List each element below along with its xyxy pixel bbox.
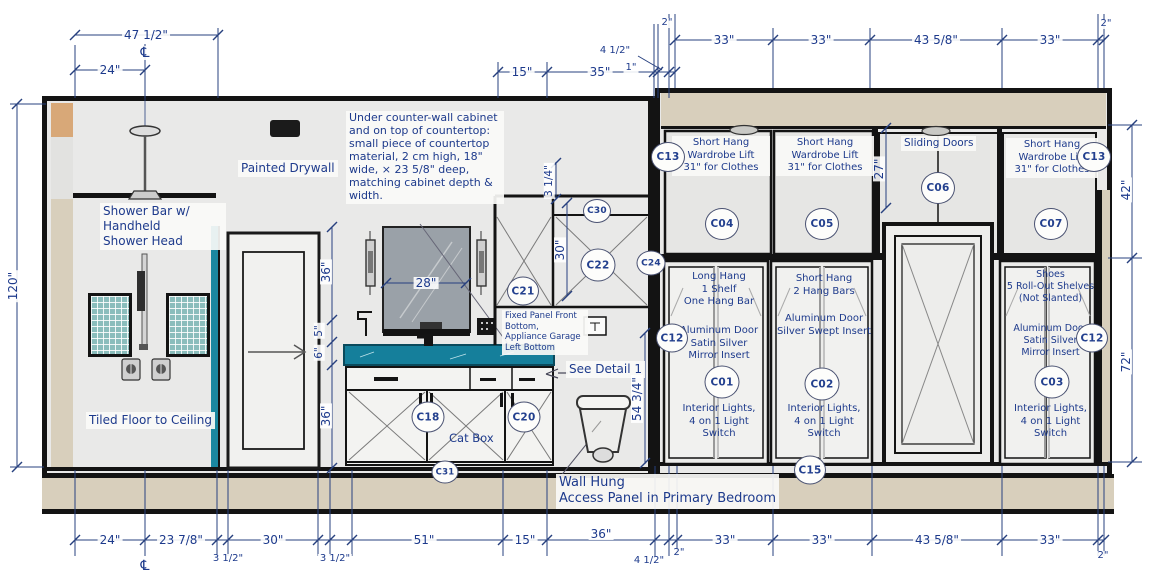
dim-top-35: 35"	[588, 66, 613, 78]
label-c02-short-hang2: Short Hang 2 Hang Bars	[773, 272, 875, 299]
callout-c22: C22	[581, 249, 616, 282]
handheld-shower-bar-icon	[137, 254, 148, 350]
dim-54: 54 3/4"	[631, 375, 643, 423]
dim-closet-27: 27"	[873, 157, 885, 182]
dim-mirror-28: 28"	[414, 277, 439, 289]
dim-36-lower: 36"	[320, 404, 332, 429]
dim-bot-24: 24"	[98, 534, 123, 546]
callout-c12-right: C12	[1076, 324, 1108, 353]
label-c02-alum-door: Aluminum Door Silver Swept Insert	[773, 312, 875, 339]
callout-c01: C01	[705, 366, 740, 399]
centerline-top: ℄	[139, 46, 152, 60]
dim-bot-15: 15"	[513, 534, 538, 546]
centerline-bottom: ℄	[139, 559, 152, 573]
faucet-icon	[358, 312, 372, 336]
dim-top-24: 24"	[98, 64, 123, 76]
dim-right-72: 72"	[1120, 350, 1132, 375]
callout-c05: C05	[805, 208, 839, 240]
label-c04-short-hang: Short Hang Wardrobe Lift 31" for Clothes	[672, 136, 770, 176]
dim-top-1: 1"	[624, 63, 639, 73]
callout-c03: C03	[1035, 366, 1070, 399]
dim-bot-3half-2: 3 1/2"	[318, 554, 352, 564]
dim-top-15: 15"	[510, 66, 535, 78]
keypad-icon	[477, 318, 495, 335]
dim-top-33-2: 33"	[809, 34, 834, 46]
callout-c20: C20	[508, 402, 541, 433]
dim-36-upper: 36"	[320, 260, 332, 285]
label-painted-drywall: Painted Drywall	[238, 160, 338, 177]
label-c02-lights: Interior Lights, 4 on 1 Light Switch	[773, 402, 875, 442]
callout-c13-left: C13	[651, 142, 685, 172]
callout-c07: C07	[1034, 208, 1068, 240]
callout-c04: C04	[705, 208, 739, 240]
callout-c12-left: C12	[656, 324, 688, 353]
label-c01-lights: Interior Lights, 4 on 1 Light Switch	[667, 402, 771, 442]
label-counter-note: Under counter-wall cabinet and on top of…	[346, 111, 504, 204]
ceiling-vent-icon	[270, 120, 300, 137]
callout-c13-right: C13	[1077, 142, 1111, 172]
dim-bot-23: 23 7/8"	[157, 534, 205, 546]
label-c03-shoes: Shoes 5 Roll-Out Shelves (Not Slanted)	[1000, 268, 1101, 306]
dim-top-33-1: 33"	[712, 34, 737, 46]
callout-c30: C30	[583, 199, 611, 223]
shower-door	[228, 233, 319, 468]
callout-c02: C02	[805, 368, 840, 401]
dim-top-33-3: 33"	[1038, 34, 1063, 46]
label-wall-hung: Wall Hung Access Panel in Primary Bedroo…	[556, 474, 779, 509]
toilet-icon	[560, 396, 630, 477]
dim-5: 5"	[314, 323, 325, 339]
dim-top-47half: 47 1/2"	[122, 29, 170, 41]
label-tiled-floor: Tiled Floor to Ceiling	[86, 412, 215, 429]
label-c03-lights: Interior Lights, 4 on 1 Light Switch	[1000, 402, 1101, 442]
dim-bot-33-3: 33"	[1038, 534, 1063, 546]
callout-c18: C18	[412, 402, 445, 433]
callout-c06: C06	[921, 172, 955, 204]
dim-left-120: 120"	[7, 270, 19, 302]
callout-c21: C21	[507, 277, 539, 306]
elevation-drawing-canvas: 47 1/2" 24" ℄ 15" 35" 1" 4 1/2" 2" 33" 3…	[0, 0, 1159, 587]
dim-bot-2-mid: 2"	[672, 548, 687, 558]
closet-entry-door	[884, 224, 992, 464]
callout-c15: C15	[794, 456, 826, 485]
label-sliding-doors: Sliding Doors	[901, 136, 976, 151]
dim-bot-4half: 4 1/2"	[632, 556, 666, 566]
label-fixed-panel: Fixed Panel Front Bottom, Appliance Gara…	[502, 310, 588, 355]
dim-bot-30: 30"	[261, 534, 286, 546]
callout-c24: C24	[637, 251, 666, 276]
dim-bot-2-right: 2"	[1096, 551, 1111, 561]
dim-3quarter: 3 1/4"	[544, 163, 555, 199]
label-c01-long-hang: Long Hang 1 Shelf One Hang Bar	[667, 270, 771, 310]
dim-30-vert: 30"	[554, 238, 566, 263]
dim-bot-51: 51"	[412, 534, 437, 546]
shower-valve-icons	[122, 359, 170, 380]
dim-bot-43: 43 5/8"	[913, 534, 961, 546]
dim-right-42: 42"	[1120, 178, 1132, 203]
dim-bot-33-1: 33"	[713, 534, 738, 546]
label-shower-bar: Shower Bar w/ Handheld Shower Head	[100, 203, 226, 250]
dim-top-4half: 4 1/2"	[598, 46, 632, 56]
dim-top-43: 43 5/8"	[912, 34, 960, 46]
dim-top-2-left: 2"	[660, 18, 675, 28]
dim-top-2-right: 2"	[1099, 19, 1114, 29]
dim-6: 6"	[314, 345, 325, 361]
dim-bot-33-2: 33"	[810, 534, 835, 546]
label-cat-box: Cat Box	[446, 430, 497, 446]
label-c05-short-hang: Short Hang Wardrobe Lift 31" for Clothes	[776, 136, 874, 176]
callout-c31: C31	[432, 461, 459, 484]
dim-bot-3half-1: 3 1/2"	[211, 554, 245, 564]
dim-bot-36: 36"	[589, 528, 614, 540]
